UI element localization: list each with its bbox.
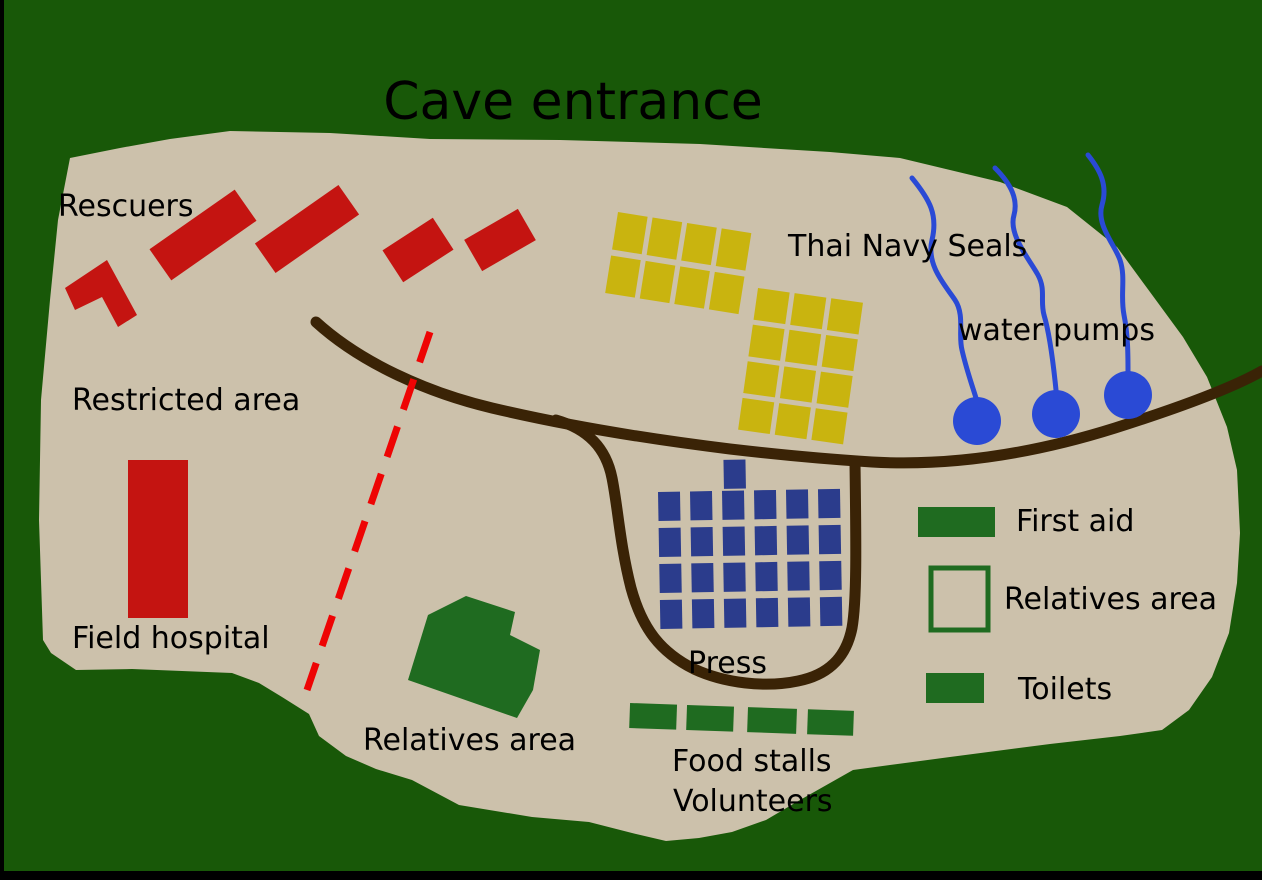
tent-icon bbox=[660, 600, 683, 629]
tent-icon bbox=[780, 366, 816, 402]
tent-icon bbox=[659, 528, 682, 557]
water-pump-icon bbox=[1104, 371, 1152, 419]
tent-icon bbox=[722, 490, 745, 519]
tent-icon bbox=[612, 212, 648, 254]
tent-icon bbox=[756, 598, 779, 627]
tent-icon bbox=[819, 525, 842, 554]
tent-icon bbox=[786, 489, 809, 518]
page-title: Cave entrance bbox=[383, 72, 763, 132]
tent-icon bbox=[790, 293, 826, 329]
tent-icon bbox=[691, 527, 714, 556]
label-volunteers: Volunteers bbox=[673, 784, 833, 819]
field-hospital-block bbox=[128, 460, 188, 618]
tent-icon bbox=[827, 298, 863, 334]
tent-icon bbox=[819, 561, 842, 590]
tent-icon bbox=[647, 217, 683, 259]
tent-icon bbox=[692, 599, 715, 628]
label-thai-navy-seals: Thai Navy Seals bbox=[787, 229, 1027, 264]
stall-icon bbox=[629, 703, 677, 730]
tent-icon bbox=[738, 398, 774, 434]
tent-icon bbox=[724, 598, 747, 627]
first-aid-swatch bbox=[918, 507, 995, 537]
tent-icon bbox=[605, 255, 641, 297]
label-relatives-area: Relatives area bbox=[363, 723, 576, 758]
tent-icon bbox=[640, 261, 676, 303]
stall-icon bbox=[686, 705, 734, 732]
tent-icon bbox=[754, 490, 777, 519]
tent-icon bbox=[723, 526, 746, 555]
tent-icon bbox=[755, 562, 778, 591]
tent-icon bbox=[690, 491, 713, 520]
tent-icon bbox=[787, 525, 810, 554]
label-water-pumps: water pumps bbox=[958, 313, 1155, 348]
tent-icon bbox=[658, 492, 681, 521]
site-map-canvas: First aid Relatives area Toilets Cave en… bbox=[0, 0, 1262, 880]
cave-rescue-site-map: First aid Relatives area Toilets Cave en… bbox=[0, 0, 1262, 880]
stall-icon bbox=[747, 707, 797, 734]
label-restricted-area: Restricted area bbox=[72, 383, 300, 418]
tent-icon bbox=[674, 266, 710, 308]
tent-icon bbox=[681, 223, 717, 265]
tent-icon bbox=[788, 597, 811, 626]
tent-icon bbox=[691, 563, 714, 592]
water-pump-icon bbox=[1032, 390, 1080, 438]
label-rescuers: Rescuers bbox=[58, 189, 194, 224]
tent-icon bbox=[785, 330, 821, 366]
label-field-hospital: Field hospital bbox=[72, 621, 270, 656]
toilets-swatch bbox=[926, 673, 984, 703]
tent-icon bbox=[787, 561, 810, 590]
tent-icon bbox=[748, 325, 784, 361]
tent-icon bbox=[743, 361, 779, 397]
tent-icon bbox=[755, 526, 778, 555]
water-pump-icon bbox=[953, 397, 1001, 445]
tent-icon bbox=[820, 597, 843, 626]
tent-icon bbox=[716, 228, 752, 270]
label-press: Press bbox=[688, 646, 767, 681]
stall-icon bbox=[807, 709, 854, 736]
tent-icon bbox=[723, 562, 746, 591]
legend-label-first-aid: First aid bbox=[1016, 504, 1134, 539]
legend-label-relatives-area: Relatives area bbox=[1004, 582, 1217, 617]
tent-icon bbox=[822, 335, 858, 371]
tent-icon bbox=[811, 408, 847, 444]
tent-icon bbox=[659, 564, 682, 593]
tent-icon bbox=[709, 272, 745, 314]
tent-icon bbox=[817, 372, 853, 408]
tent-icon bbox=[754, 288, 790, 324]
label-food-stalls: Food stalls bbox=[672, 744, 832, 779]
tent-icon bbox=[723, 459, 746, 488]
legend-label-toilets: Toilets bbox=[1017, 672, 1112, 707]
tent-icon bbox=[775, 403, 811, 439]
tent-icon bbox=[818, 489, 841, 518]
